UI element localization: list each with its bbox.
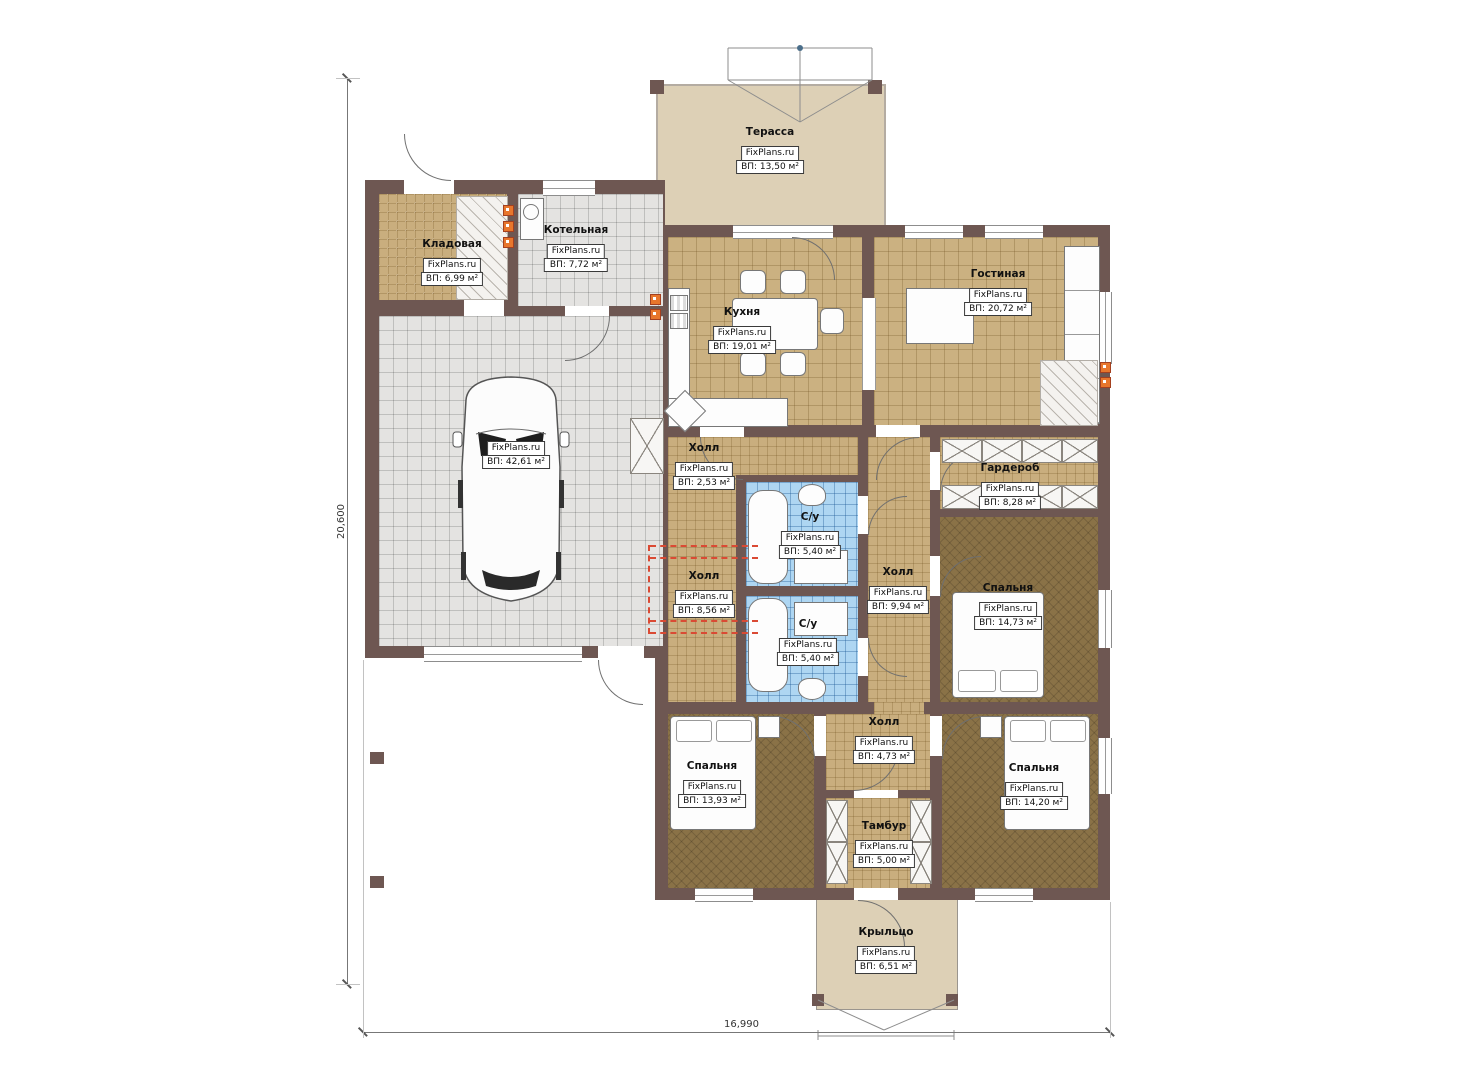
wardrobe-unit [1022, 439, 1062, 463]
garage-door-swing [598, 660, 643, 705]
horizontal-dimension-line [363, 1032, 1110, 1033]
vent-marker [1100, 362, 1111, 373]
room-label-living: Гостиная FixPlans.ru ВП: 20,72 м² [964, 268, 1032, 316]
area-label: ВП: 7,72 м² [544, 258, 608, 273]
area-label: ВП: 6,99 м² [421, 272, 483, 287]
toilet-bottom [798, 678, 826, 700]
area-label: ВП: 42,61 м² [482, 455, 550, 470]
terrace-kitchen-door [733, 225, 833, 239]
area-label: ВП: 20,72 м² [964, 302, 1032, 317]
brand-label: FixPlans.ru [675, 462, 733, 477]
corner-unit [1040, 360, 1098, 426]
stove-burners [670, 295, 688, 311]
room-title: Кухня [708, 306, 776, 318]
vent-marker [503, 221, 514, 232]
red-dashed-line [650, 557, 758, 559]
room-title: Котельная [544, 224, 608, 236]
room-label-tambour: Тамбур FixPlans.ru ВП: 5,00 м² [853, 820, 915, 868]
entry-door [854, 888, 898, 900]
chair [820, 308, 844, 334]
area-label: ВП: 14,20 м² [1000, 796, 1068, 811]
room-label-terrace: Терасса FixPlans.ru ВП: 13,50 м² [736, 126, 804, 174]
stove-burners [670, 313, 688, 329]
red-dashed-line [650, 620, 758, 622]
storage-door-swing [404, 134, 451, 181]
bedroom-right-window [1098, 590, 1112, 648]
floor-plan: Терасса FixPlans.ru ВП: 13,50 м² Кладова… [0, 0, 1474, 1080]
room-label-bedroom-br: Спальня FixPlans.ru ВП: 14,20 м² [1000, 762, 1068, 810]
area-label: ВП: 13,93 м² [678, 794, 746, 809]
terrace-roof-outline [726, 42, 874, 126]
vent-marker [650, 309, 661, 320]
room-title: Спальня [678, 760, 746, 772]
brand-label: FixPlans.ru [969, 288, 1027, 303]
bath-top-door [858, 496, 868, 534]
toilet-top [798, 484, 826, 506]
storage-corridor-door [464, 300, 504, 316]
brand-label: FixPlans.ru [547, 244, 605, 259]
room-label-hall-left: Холл FixPlans.ru ВП: 8,56 м² [673, 570, 735, 618]
fence-post [370, 876, 384, 888]
nightstand [980, 716, 1002, 738]
room-label-hall-right: Холл FixPlans.ru ВП: 9,94 м² [867, 566, 929, 614]
witness-line [1110, 902, 1111, 1038]
room-label-hall-small: Холл FixPlans.ru ВП: 2,53 м² [673, 442, 735, 490]
bedroom-bl-window [695, 888, 753, 902]
pillow [958, 670, 996, 692]
brand-label: FixPlans.ru [857, 946, 915, 961]
vent-marker [1100, 377, 1111, 388]
witness-line [363, 660, 364, 1038]
bedroom-br-window [1098, 738, 1112, 794]
area-label: ВП: 8,56 м² [673, 604, 735, 619]
room-label-porch: Крыльцо FixPlans.ru ВП: 6,51 м² [855, 926, 917, 974]
area-label: ВП: 19,01 м² [708, 340, 776, 355]
room-title: Гостиная [964, 268, 1032, 280]
storage-entry-door [404, 180, 454, 194]
room-label-bedroom-bl: Спальня FixPlans.ru ВП: 13,93 м² [678, 760, 746, 808]
wardrobe-unit [1062, 485, 1098, 509]
vertical-dimension-label: 20,600 [336, 502, 347, 541]
vent-marker [503, 205, 514, 216]
bedroom-right-door [930, 556, 940, 596]
chair [740, 270, 766, 294]
chair [780, 352, 806, 376]
area-label: ВП: 13,50 м² [736, 160, 804, 175]
room-title: Холл [867, 566, 929, 578]
vertical-dimension-line [347, 78, 348, 984]
brand-label: FixPlans.ru [741, 146, 799, 161]
area-label: ВП: 14,73 м² [974, 616, 1042, 631]
hall-corridor-link [874, 702, 924, 714]
red-dashed-line [650, 545, 758, 547]
horizontal-dimension-label: 16,990 [722, 1019, 761, 1030]
shaft-closet [630, 418, 664, 474]
tambour-closet [826, 800, 848, 842]
room-title: Спальня [1000, 762, 1068, 774]
brand-label: FixPlans.ru [487, 441, 545, 456]
car [452, 372, 570, 607]
room-title: Терасса [736, 126, 804, 138]
room-title: С/у [779, 511, 841, 523]
bedroom-br-window-bottom [975, 888, 1033, 902]
brand-label: FixPlans.ru [855, 736, 913, 751]
fence-post [370, 752, 384, 764]
room-title: Холл [673, 442, 735, 454]
bedroom-bl-door [814, 716, 826, 756]
wardrobe-unit [982, 439, 1022, 463]
area-label: ВП: 5,40 м² [777, 652, 839, 667]
kitchen-living-opening [862, 298, 876, 390]
brand-label: FixPlans.ru [781, 531, 839, 546]
bath-bottom-door [858, 638, 868, 676]
wardrobe-door [930, 452, 940, 490]
terrace-post [650, 80, 664, 94]
living-window-2 [985, 225, 1043, 239]
brand-label: FixPlans.ru [869, 586, 927, 601]
extension-line [336, 78, 360, 79]
living-window-right [1098, 292, 1112, 364]
chair [740, 352, 766, 376]
room-title: Холл [673, 570, 735, 582]
vent-marker [650, 294, 661, 305]
room-title: Гардероб [979, 462, 1041, 474]
garage-gate [424, 646, 582, 662]
room-label-wardrobe: Гардероб FixPlans.ru ВП: 8,28 м² [979, 462, 1041, 510]
room-title: С/у [777, 618, 839, 630]
area-label: ВП: 9,94 м² [867, 600, 929, 615]
area-label: ВП: 5,40 м² [779, 545, 841, 560]
area-label: ВП: 2,53 м² [673, 476, 735, 491]
boiler-door [565, 306, 609, 316]
room-label-garage: FixPlans.ru ВП: 42,61 м² [482, 435, 550, 469]
chair [780, 270, 806, 294]
room-title: Холл [853, 716, 915, 728]
brand-label: FixPlans.ru [675, 590, 733, 605]
brand-label: FixPlans.ru [683, 780, 741, 795]
pillow [716, 720, 752, 742]
area-label: ВП: 6,51 м² [855, 960, 917, 975]
brand-label: FixPlans.ru [981, 482, 1039, 497]
boiler-sink [523, 204, 539, 220]
room-title: Тамбур [853, 820, 915, 832]
bedroom-br-door [930, 716, 942, 756]
tambour-hall-door [854, 790, 898, 798]
room-label-hall-bottom: Холл FixPlans.ru ВП: 4,73 м² [853, 716, 915, 764]
brand-label: FixPlans.ru [1005, 782, 1063, 797]
area-label: ВП: 5,00 м² [853, 854, 915, 869]
brand-label: FixPlans.ru [855, 840, 913, 855]
pillow [676, 720, 712, 742]
room-title: Крыльцо [855, 926, 917, 938]
boiler-window [543, 180, 595, 196]
living-window-1 [905, 225, 963, 239]
nightstand [758, 716, 780, 738]
wardrobe-unit [942, 439, 982, 463]
room-label-kitchen: Кухня FixPlans.ru ВП: 19,01 м² [708, 306, 776, 354]
vent-marker [503, 237, 514, 248]
brand-label: FixPlans.ru [713, 326, 771, 341]
tambour-closet [826, 842, 848, 884]
brand-label: FixPlans.ru [423, 258, 481, 273]
room-label-bedroom-right: Спальня FixPlans.ru ВП: 14,73 м² [974, 582, 1042, 630]
red-dashed-line-vertical [648, 545, 650, 634]
area-label: ВП: 8,28 м² [979, 496, 1041, 511]
extension-line [336, 984, 360, 985]
pillow [1010, 720, 1046, 742]
porch-roof-outline [814, 996, 958, 1040]
room-label-storage: Кладовая FixPlans.ru ВП: 6,99 м² [421, 238, 483, 286]
room-label-bath-top: С/у FixPlans.ru ВП: 5,40 м² [779, 511, 841, 559]
pillow [1000, 670, 1038, 692]
area-label: ВП: 4,73 м² [853, 750, 915, 765]
wardrobe-unit [942, 485, 982, 509]
brand-label: FixPlans.ru [979, 602, 1037, 617]
red-dashed-line [650, 632, 758, 634]
room-label-boiler: Котельная FixPlans.ru ВП: 7,72 м² [544, 224, 608, 272]
wardrobe-unit [1062, 439, 1098, 463]
brand-label: FixPlans.ru [779, 638, 837, 653]
room-title: Кладовая [421, 238, 483, 250]
garage-side-door [598, 646, 644, 660]
room-title: Спальня [974, 582, 1042, 594]
pillow [1050, 720, 1086, 742]
living-hall-door [876, 425, 920, 437]
room-label-bath-bottom: С/у FixPlans.ru ВП: 5,40 м² [777, 618, 839, 666]
